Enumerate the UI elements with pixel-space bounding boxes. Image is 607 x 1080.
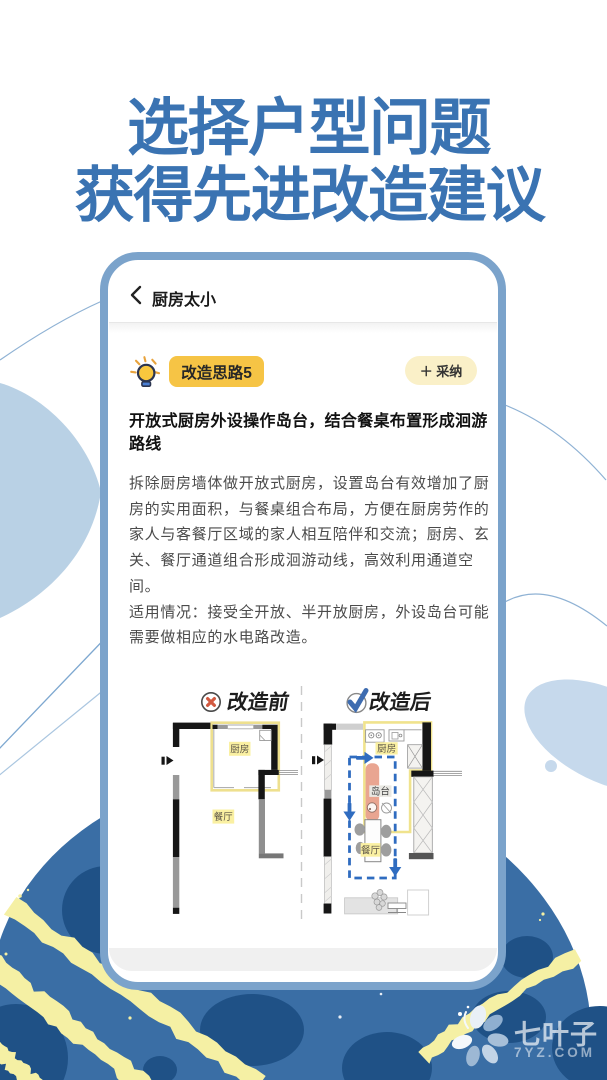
svg-text:餐厅: 餐厅 xyxy=(361,844,381,856)
svg-text:岛台: 岛台 xyxy=(371,785,390,797)
svg-text:餐厅: 餐厅 xyxy=(214,811,234,823)
svg-text:厨房: 厨房 xyxy=(230,743,249,755)
svg-text:改造后: 改造后 xyxy=(368,690,434,714)
svg-text:改造前: 改造前 xyxy=(226,690,291,714)
svg-text:厨房: 厨房 xyxy=(377,743,396,755)
